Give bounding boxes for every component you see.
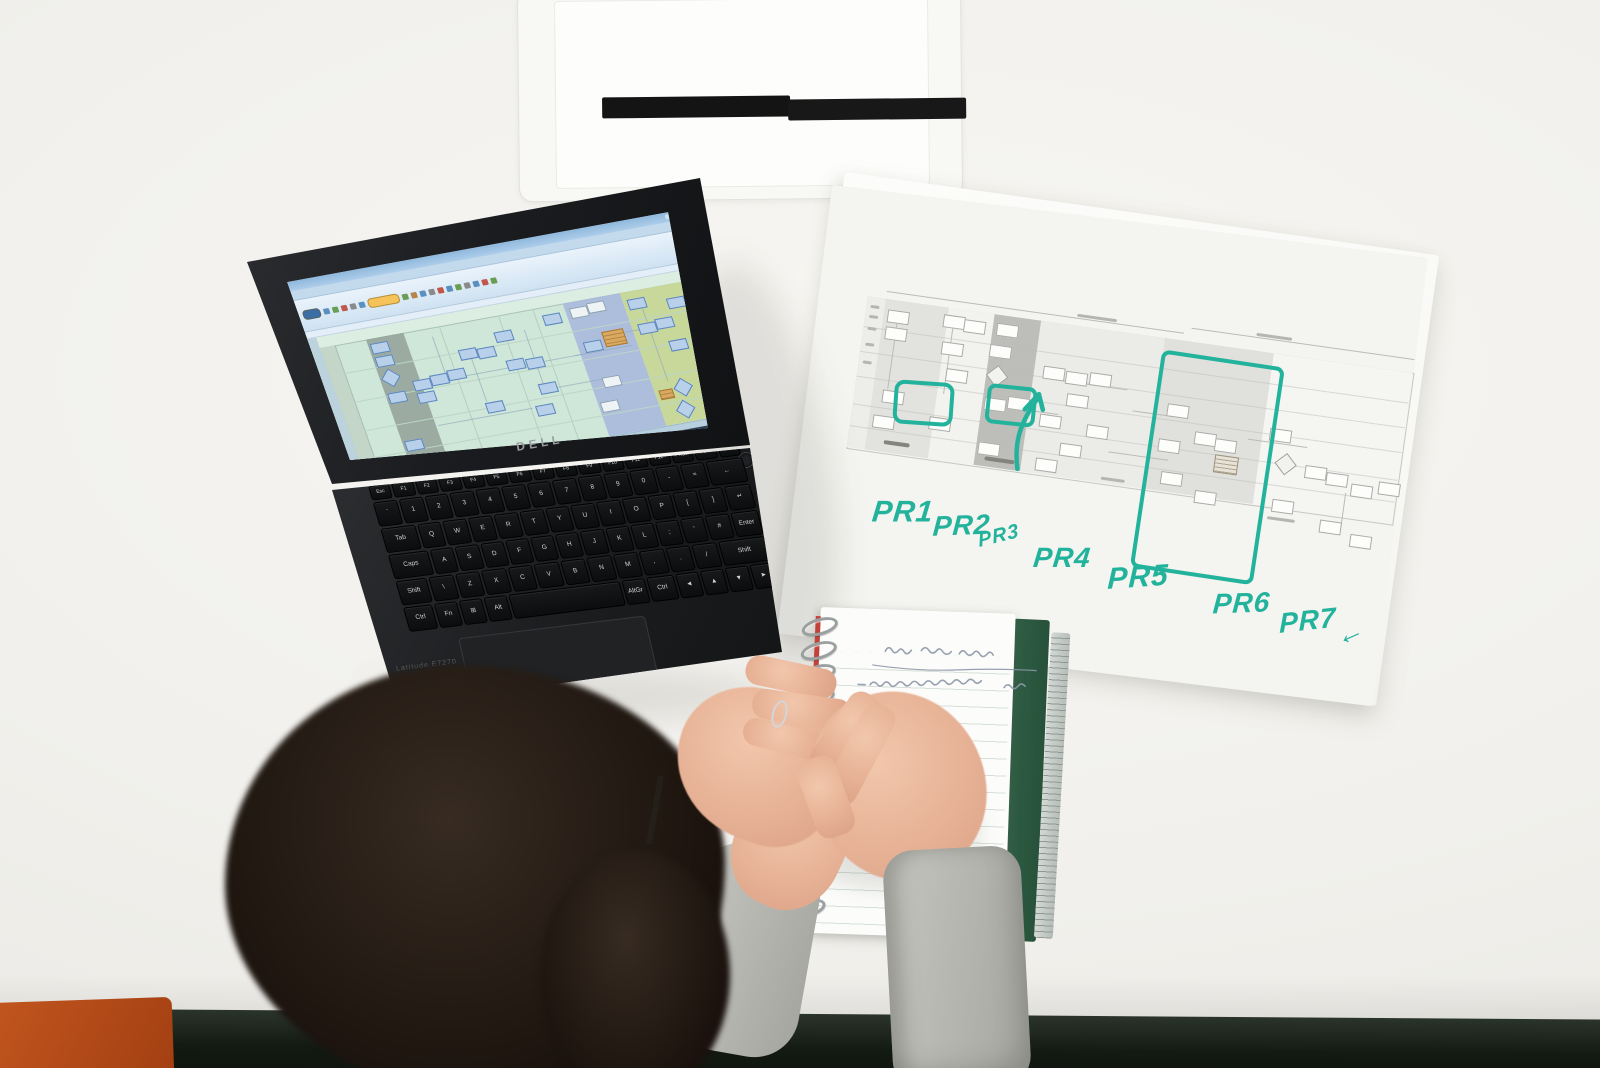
key-F2: F2 bbox=[414, 478, 439, 495]
ribbon-icon-11 bbox=[437, 287, 445, 294]
ribbon-icon-13 bbox=[454, 284, 462, 291]
window-controls bbox=[664, 212, 679, 219]
key-←: ← bbox=[705, 457, 749, 486]
key-Shift: Shift bbox=[395, 578, 433, 606]
flowchart-shape-b bbox=[416, 390, 437, 404]
key-`: ` bbox=[373, 500, 404, 527]
ribbon-icon-4 bbox=[349, 303, 357, 310]
key-Caps: Caps bbox=[388, 550, 435, 579]
flowchart-shape-b bbox=[535, 403, 556, 417]
key-Tab: Tab bbox=[380, 525, 421, 554]
desk-front-edge bbox=[0, 1008, 1600, 1068]
right-sleeve bbox=[882, 845, 1032, 1068]
orange-chair bbox=[0, 997, 174, 1068]
key-Ctrl: Ctrl bbox=[403, 604, 439, 632]
cable-hatch-lid bbox=[554, 0, 930, 189]
key-X: X bbox=[481, 568, 512, 595]
ribbon-icon-17 bbox=[490, 277, 498, 284]
key-N: N bbox=[586, 555, 617, 582]
flowchart-shape-b bbox=[446, 368, 467, 382]
marker-circled-box-1 bbox=[892, 379, 955, 427]
ribbon-icon-2 bbox=[332, 306, 340, 313]
ribbon-icon-15 bbox=[472, 280, 480, 287]
key-Shift: Shift bbox=[718, 536, 772, 566]
key-O: O bbox=[621, 496, 652, 523]
flowchart-app-window bbox=[287, 210, 756, 497]
ribbon-icon-1 bbox=[323, 308, 331, 315]
flowchart-shape-b bbox=[505, 358, 526, 372]
ribbon-icon-5 bbox=[358, 301, 366, 308]
key-0: 0 bbox=[629, 468, 660, 495]
key-F5: F5 bbox=[484, 469, 509, 486]
key-↵: ↵ bbox=[724, 483, 757, 510]
key-Esc: Esc bbox=[368, 483, 393, 500]
key-F4: F4 bbox=[461, 472, 486, 489]
canvas-row-headers bbox=[320, 345, 382, 481]
marker-label-PR6: PR6 bbox=[1212, 586, 1272, 620]
flowchart-shape-b bbox=[698, 370, 719, 384]
flowchart-shape-b bbox=[485, 400, 506, 414]
key-T: T bbox=[519, 509, 550, 536]
desk-cable-hatch bbox=[517, 0, 963, 202]
ribbon-icon-9 bbox=[419, 290, 427, 297]
key-\: \ bbox=[428, 574, 459, 601]
key-S: S bbox=[455, 544, 485, 571]
ribbon-icon-3 bbox=[340, 305, 348, 312]
key-5: 5 bbox=[501, 484, 532, 511]
desk-scene-photo: PR1PR2PR3PR4PR5PR6PR7← DELL EscF1F2F3F4F bbox=[0, 0, 1600, 1068]
ribbon-icon-12 bbox=[446, 285, 454, 292]
key-F1: F1 bbox=[391, 481, 416, 498]
connector-line bbox=[438, 408, 533, 426]
key-J: J bbox=[580, 529, 610, 556]
ribbon-icon-8 bbox=[410, 292, 418, 299]
flowchart-shape-b bbox=[476, 346, 497, 360]
flowchart-shape-b bbox=[542, 312, 563, 326]
ribbon-icon-6 bbox=[366, 293, 401, 308]
cable-hatch-brush-strip bbox=[602, 95, 790, 118]
flowchart-shape-b bbox=[493, 329, 514, 343]
key-F7: F7 bbox=[530, 463, 555, 480]
marker-label-PR5: PR5 bbox=[1107, 559, 1169, 597]
key-F8: F8 bbox=[554, 461, 579, 478]
key-V: V bbox=[534, 561, 565, 588]
key-#: # bbox=[705, 513, 735, 540]
key-F3: F3 bbox=[438, 475, 463, 492]
key-AltGr: AltGr bbox=[621, 578, 651, 605]
key-,: , bbox=[639, 548, 670, 575]
flowchart-shape-b bbox=[538, 381, 559, 395]
cable-hatch-brush-strip bbox=[788, 98, 966, 121]
marker-label-PR7: PR7 bbox=[1279, 602, 1336, 640]
ribbon-icon-7 bbox=[401, 293, 409, 300]
ribbon-icon-16 bbox=[481, 279, 489, 286]
key-R: R bbox=[493, 512, 524, 539]
ribbon-icon-10 bbox=[428, 289, 436, 296]
key-F6: F6 bbox=[507, 466, 532, 483]
key-1: 1 bbox=[398, 497, 429, 524]
ribbon-icon-0 bbox=[301, 308, 322, 321]
laptop-lid: DELL bbox=[240, 170, 760, 500]
key-Ctrl: Ctrl bbox=[646, 575, 680, 603]
canvas-gridline-v bbox=[439, 326, 487, 459]
flowchart-shape-b bbox=[689, 304, 710, 318]
marker-label-PR4: PR4 bbox=[1032, 542, 1093, 574]
key-Enter: Enter bbox=[730, 510, 764, 538]
key-9: 9 bbox=[603, 471, 634, 498]
marker-label-PR1: PR1 bbox=[870, 495, 935, 529]
ribbon-icon-14 bbox=[463, 282, 471, 289]
